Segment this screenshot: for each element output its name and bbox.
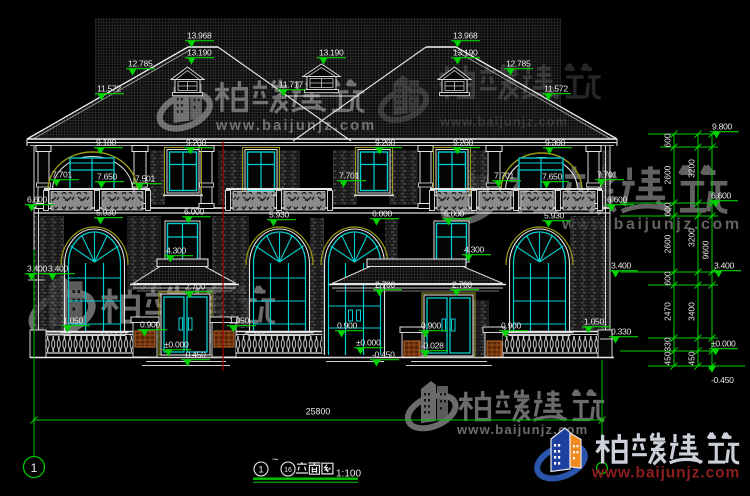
svg-text:330: 330	[663, 337, 673, 351]
svg-text:±0.000: ±0.000	[356, 338, 381, 348]
svg-text:1: 1	[258, 465, 263, 476]
svg-text:1.050: 1.050	[63, 316, 84, 326]
svg-text:3.400: 3.400	[27, 264, 48, 274]
svg-text:9.800: 9.800	[712, 122, 733, 132]
svg-text:11.572: 11.572	[97, 84, 121, 94]
svg-text:3200: 3200	[687, 228, 697, 247]
svg-text:0.330: 0.330	[611, 327, 632, 337]
svg-text:6.000: 6.000	[444, 209, 465, 219]
svg-text:3200: 3200	[687, 159, 697, 178]
svg-text:2.700: 2.700	[375, 280, 396, 290]
svg-text:9.300: 9.300	[545, 138, 566, 148]
svg-text:4.300: 4.300	[464, 245, 485, 255]
svg-text:450: 450	[687, 351, 697, 365]
svg-text:5.930: 5.930	[269, 210, 290, 220]
svg-text:-0.028: -0.028	[421, 341, 444, 351]
svg-text:2.700: 2.700	[185, 282, 206, 292]
svg-text:3.400: 3.400	[48, 264, 69, 274]
svg-text:0.900: 0.900	[501, 321, 522, 331]
svg-text:7.701: 7.701	[339, 171, 360, 181]
svg-text:7.501: 7.501	[135, 174, 156, 184]
svg-text:9.180: 9.180	[96, 138, 117, 148]
svg-text:13.968: 13.968	[187, 31, 212, 41]
svg-text:13.968: 13.968	[453, 31, 478, 41]
svg-text:9.200: 9.200	[186, 138, 207, 148]
svg-text:7.701: 7.701	[52, 170, 73, 180]
svg-text:6.600: 6.600	[27, 195, 48, 205]
svg-text:12.785: 12.785	[506, 59, 531, 69]
svg-text:2470: 2470	[663, 302, 673, 321]
svg-text:11.572: 11.572	[544, 84, 568, 94]
svg-text:5.930: 5.930	[544, 211, 565, 221]
svg-text:13.190: 13.190	[187, 48, 212, 58]
svg-text:6.600: 6.600	[711, 191, 732, 201]
svg-text:±0.000: ±0.000	[711, 339, 736, 349]
svg-text:2600: 2600	[663, 165, 673, 184]
svg-text:3.400: 3.400	[714, 261, 735, 271]
svg-text:7.650: 7.650	[97, 172, 118, 182]
svg-text:6.000: 6.000	[184, 207, 205, 217]
svg-text:2600: 2600	[663, 234, 673, 253]
svg-text:9600: 9600	[701, 240, 711, 259]
svg-text:9.200: 9.200	[453, 138, 474, 148]
svg-text:~: ~	[272, 454, 278, 466]
svg-text:4.300: 4.300	[166, 246, 187, 256]
svg-text:16: 16	[284, 467, 292, 474]
svg-text:-0.450: -0.450	[711, 375, 734, 385]
svg-text:0.900: 0.900	[140, 320, 161, 330]
svg-text:600: 600	[663, 133, 673, 147]
svg-text:11.717: 11.717	[279, 80, 303, 90]
svg-text:1: 1	[31, 461, 38, 475]
svg-text:-0.450: -0.450	[183, 350, 206, 360]
svg-text:www.baijunjz.com: www.baijunjz.com	[591, 465, 740, 482]
svg-text:600: 600	[663, 202, 673, 216]
svg-text:1.050: 1.050	[584, 317, 605, 327]
svg-text:600: 600	[663, 271, 673, 285]
svg-text:9.200: 9.200	[375, 138, 396, 148]
svg-text:3.400: 3.400	[611, 261, 632, 271]
svg-text:7.650: 7.650	[542, 172, 563, 182]
svg-text:5.930: 5.930	[96, 208, 117, 218]
svg-text:-0.450: -0.450	[372, 350, 395, 360]
svg-text:2.700: 2.700	[452, 280, 473, 290]
svg-text:13.190: 13.190	[319, 48, 344, 58]
svg-text:450: 450	[663, 351, 673, 365]
svg-text:25800: 25800	[306, 407, 331, 417]
svg-text:www.baijunjz.com: www.baijunjz.com	[439, 114, 568, 129]
svg-text:7.701: 7.701	[597, 170, 618, 180]
svg-text:±0.000: ±0.000	[164, 340, 189, 350]
svg-text:0.900: 0.900	[421, 321, 442, 331]
svg-text:1.050: 1.050	[229, 316, 250, 326]
svg-text:12.785: 12.785	[128, 59, 153, 69]
svg-text:13.190: 13.190	[453, 48, 478, 58]
svg-text:6.000: 6.000	[372, 209, 393, 219]
svg-text:3400: 3400	[687, 302, 697, 321]
svg-text:0.900: 0.900	[337, 321, 358, 331]
svg-text:www.baijunjz.com: www.baijunjz.com	[215, 118, 376, 134]
svg-text:7.701: 7.701	[494, 171, 515, 181]
